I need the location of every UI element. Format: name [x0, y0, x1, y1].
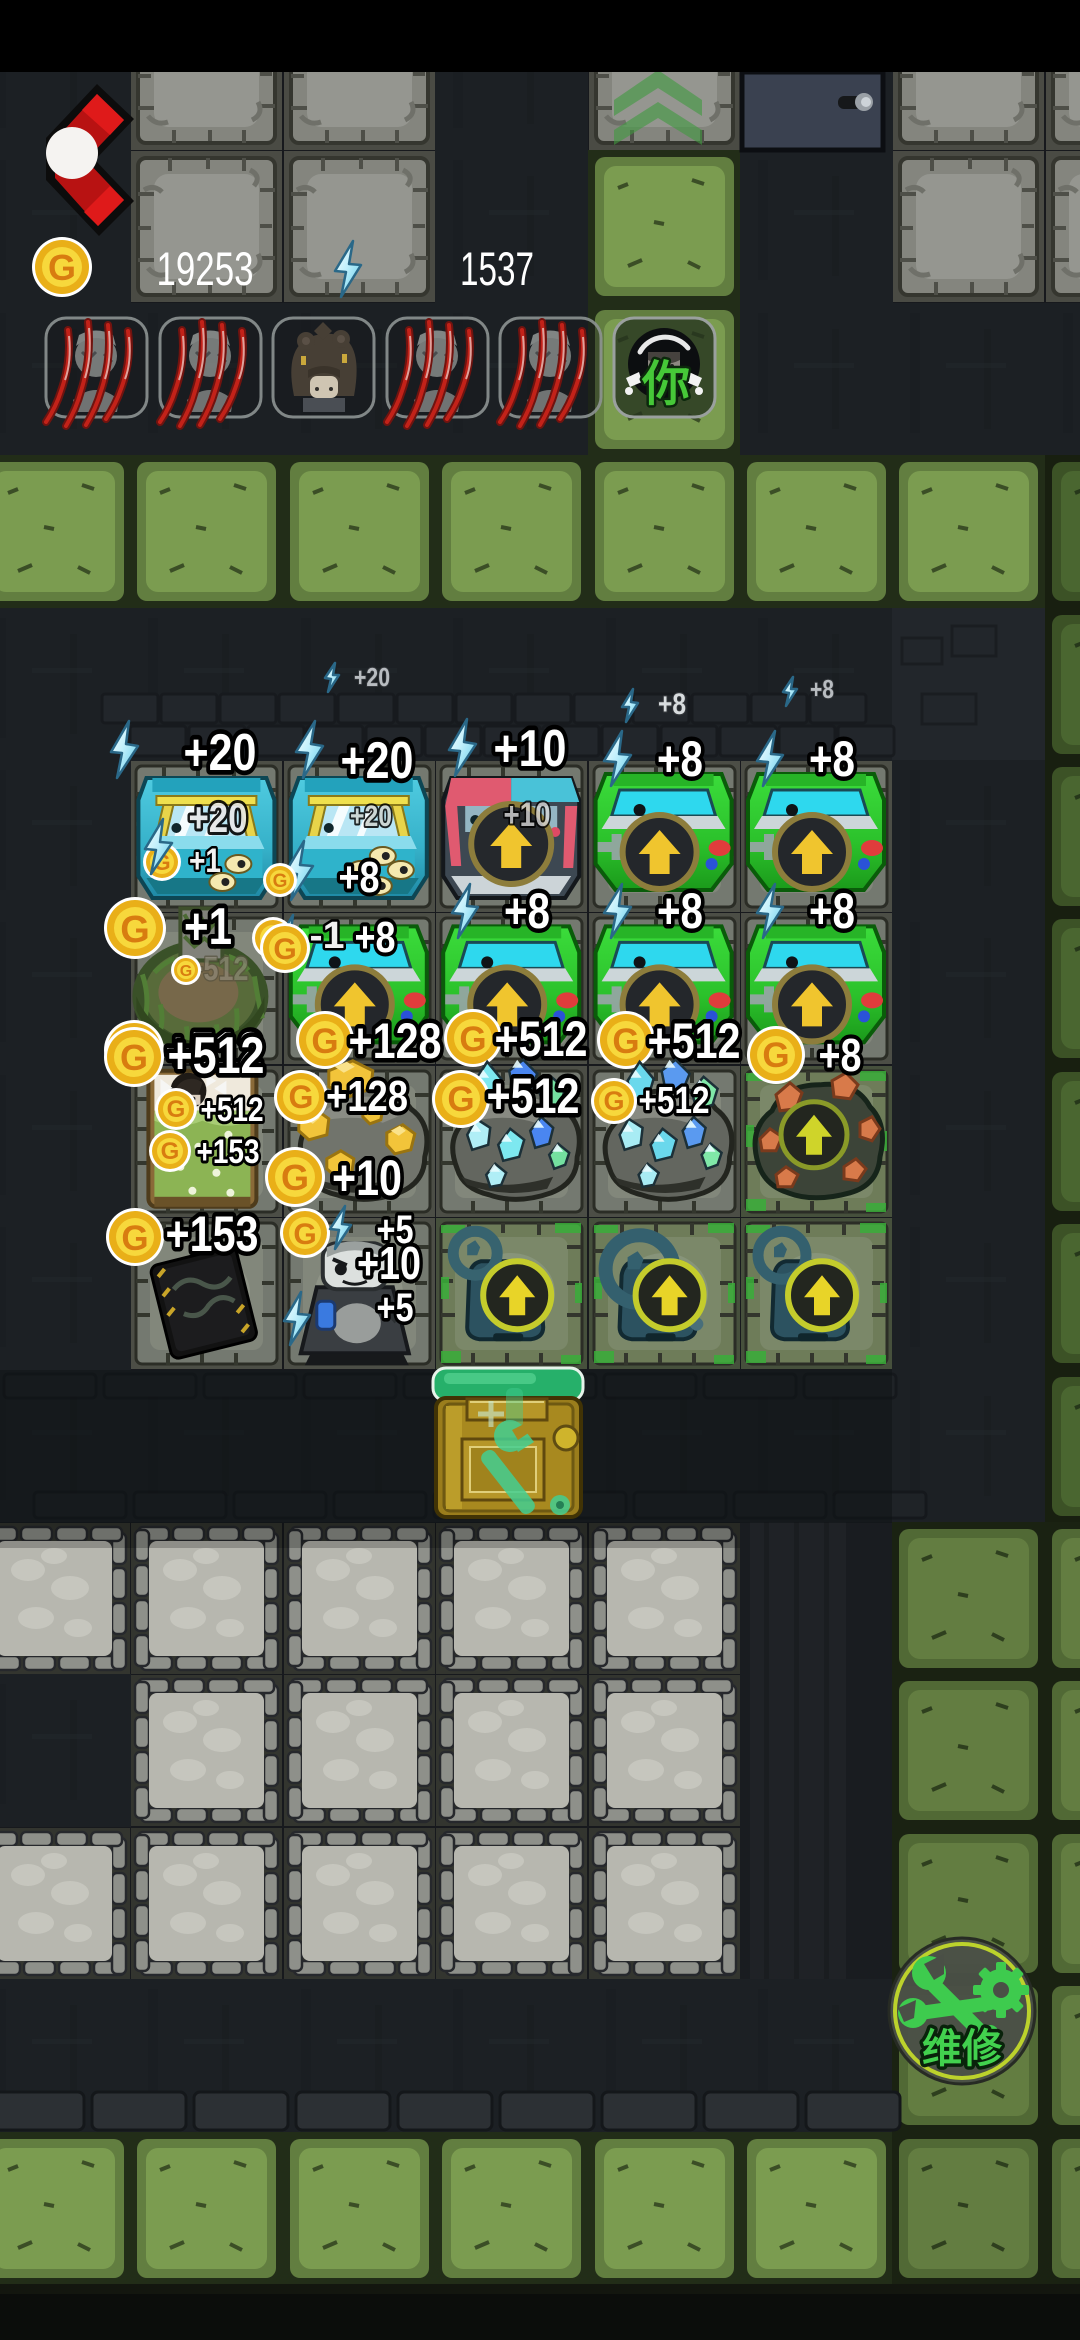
svg-text:+512: +512 — [201, 1091, 264, 1129]
svg-text:+10: +10 — [332, 1150, 402, 1206]
svg-text:G: G — [311, 1022, 338, 1061]
svg-text:G: G — [48, 247, 76, 288]
svg-text:G: G — [180, 963, 192, 980]
svg-text:+8: +8 — [819, 1029, 862, 1081]
svg-text:+8: +8 — [809, 883, 855, 939]
svg-text:+8: +8 — [810, 674, 834, 704]
svg-text:G: G — [121, 1219, 148, 1258]
svg-text:G: G — [762, 1036, 789, 1075]
svg-text:G: G — [167, 1096, 186, 1123]
svg-text:+10: +10 — [504, 796, 551, 834]
svg-text:+8: +8 — [355, 913, 396, 962]
svg-text:+8: +8 — [809, 731, 855, 787]
svg-text:+128: +128 — [349, 1013, 442, 1069]
svg-text:+512: +512 — [487, 1068, 580, 1124]
svg-text:G: G — [273, 933, 296, 966]
svg-text:维修: 维修 — [922, 2027, 1003, 2071]
svg-text:+8: +8 — [657, 731, 703, 787]
svg-text:G: G — [293, 1218, 316, 1251]
svg-text:+5: +5 — [377, 1286, 414, 1330]
svg-text:G: G — [459, 1020, 486, 1059]
svg-text:你: 你 — [641, 358, 690, 411]
svg-text:+512: +512 — [639, 1080, 710, 1122]
svg-text:G: G — [603, 1086, 624, 1116]
svg-text:G: G — [281, 1157, 309, 1198]
svg-text:+8: +8 — [657, 883, 703, 939]
svg-text:+20: +20 — [189, 794, 248, 841]
svg-text:+512: +512 — [495, 1011, 588, 1067]
svg-text:G: G — [120, 1037, 148, 1078]
svg-text:+20: +20 — [341, 732, 414, 790]
svg-text:+10: +10 — [494, 720, 567, 778]
svg-text:19253: 19253 — [157, 242, 254, 295]
svg-text:+153: +153 — [166, 1206, 259, 1262]
svg-text:+153: +153 — [197, 1133, 260, 1171]
svg-text:+128: +128 — [326, 1072, 408, 1121]
svg-text:G: G — [120, 909, 150, 951]
svg-text:+20: +20 — [350, 800, 392, 833]
svg-text:+1: +1 — [184, 898, 232, 956]
svg-text:+10: +10 — [357, 1237, 421, 1289]
svg-text:+512: +512 — [648, 1013, 741, 1069]
svg-text:G: G — [612, 1022, 639, 1061]
svg-text:G: G — [289, 1079, 314, 1115]
svg-text:+512: +512 — [168, 1027, 265, 1085]
svg-text:+8: +8 — [339, 853, 380, 902]
svg-text:G: G — [161, 1138, 180, 1165]
svg-text:+8: +8 — [658, 688, 686, 721]
svg-text:+20: +20 — [184, 724, 257, 782]
svg-text:G: G — [447, 1080, 474, 1119]
svg-text:+8: +8 — [504, 883, 550, 939]
svg-text:G: G — [273, 871, 288, 892]
svg-text:1537: 1537 — [460, 242, 534, 295]
svg-text:-1: -1 — [310, 915, 345, 957]
svg-text:+20: +20 — [354, 662, 390, 692]
